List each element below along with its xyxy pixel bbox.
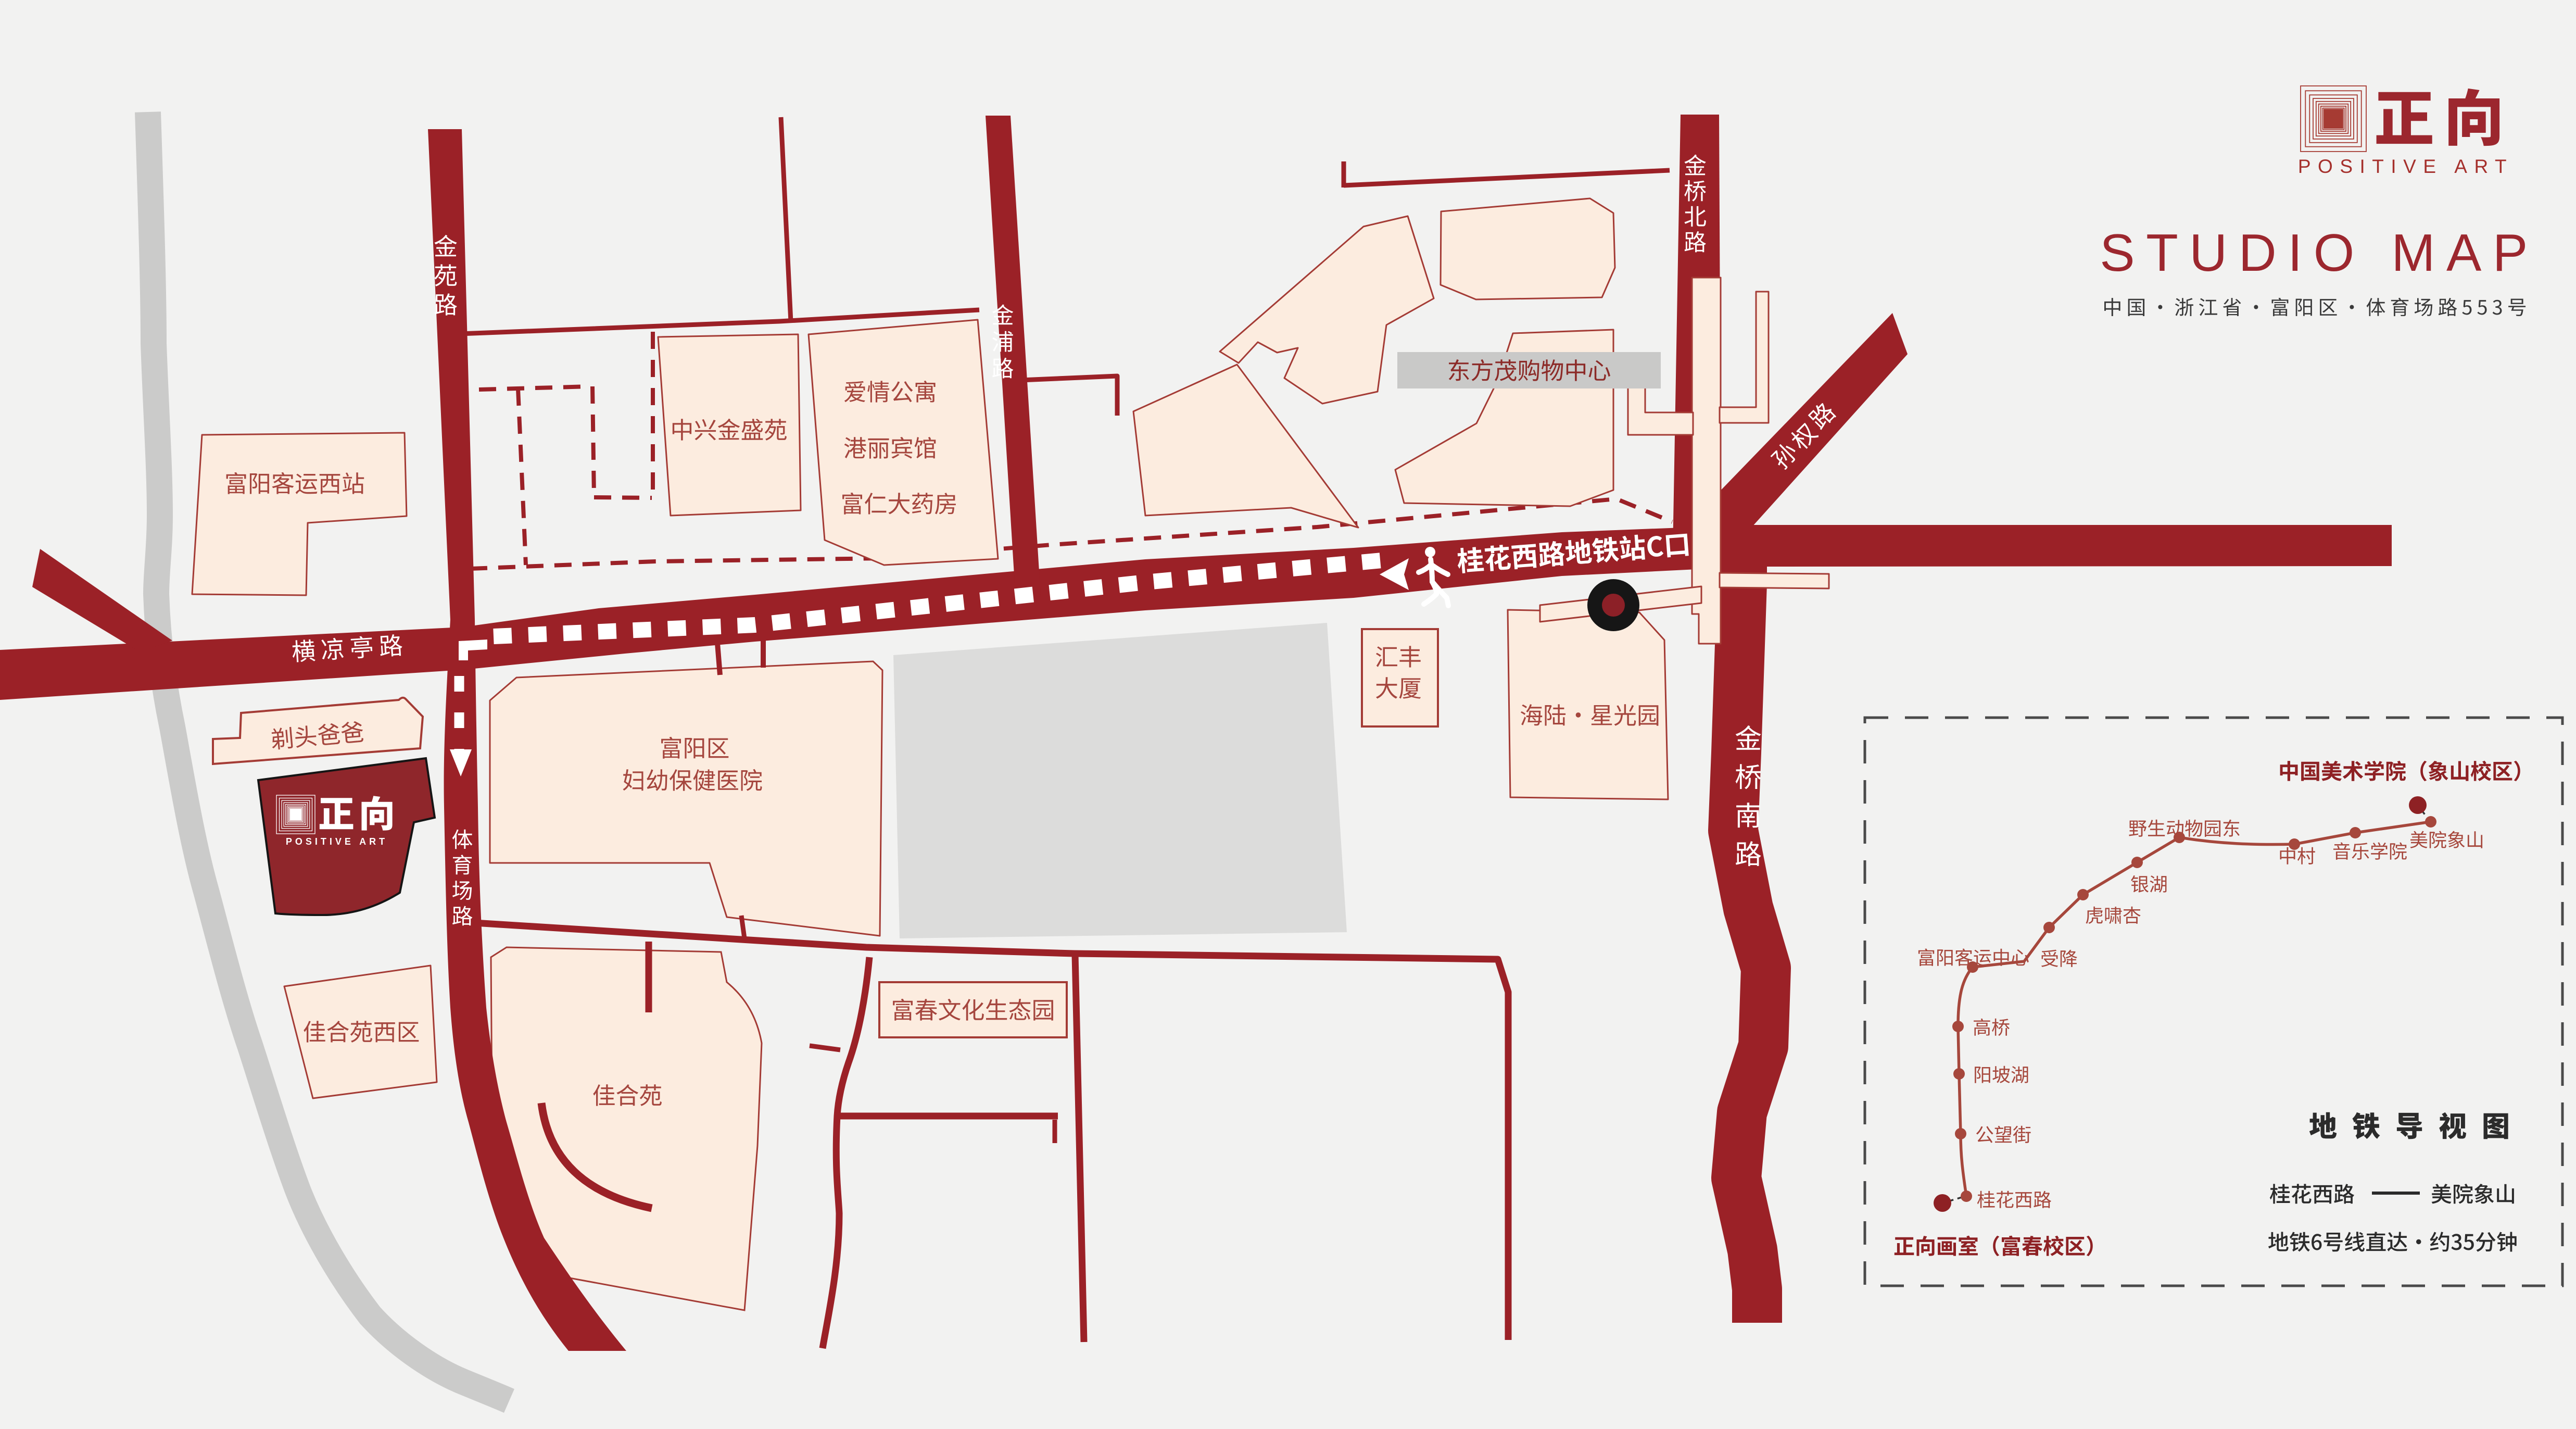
svg-text:POSITIVE ART: POSITIVE ART — [286, 836, 388, 847]
svg-text:STUDIO MAP: STUDIO MAP — [2100, 224, 2539, 282]
svg-text:POSITIVE ART: POSITIVE ART — [2298, 156, 2514, 177]
